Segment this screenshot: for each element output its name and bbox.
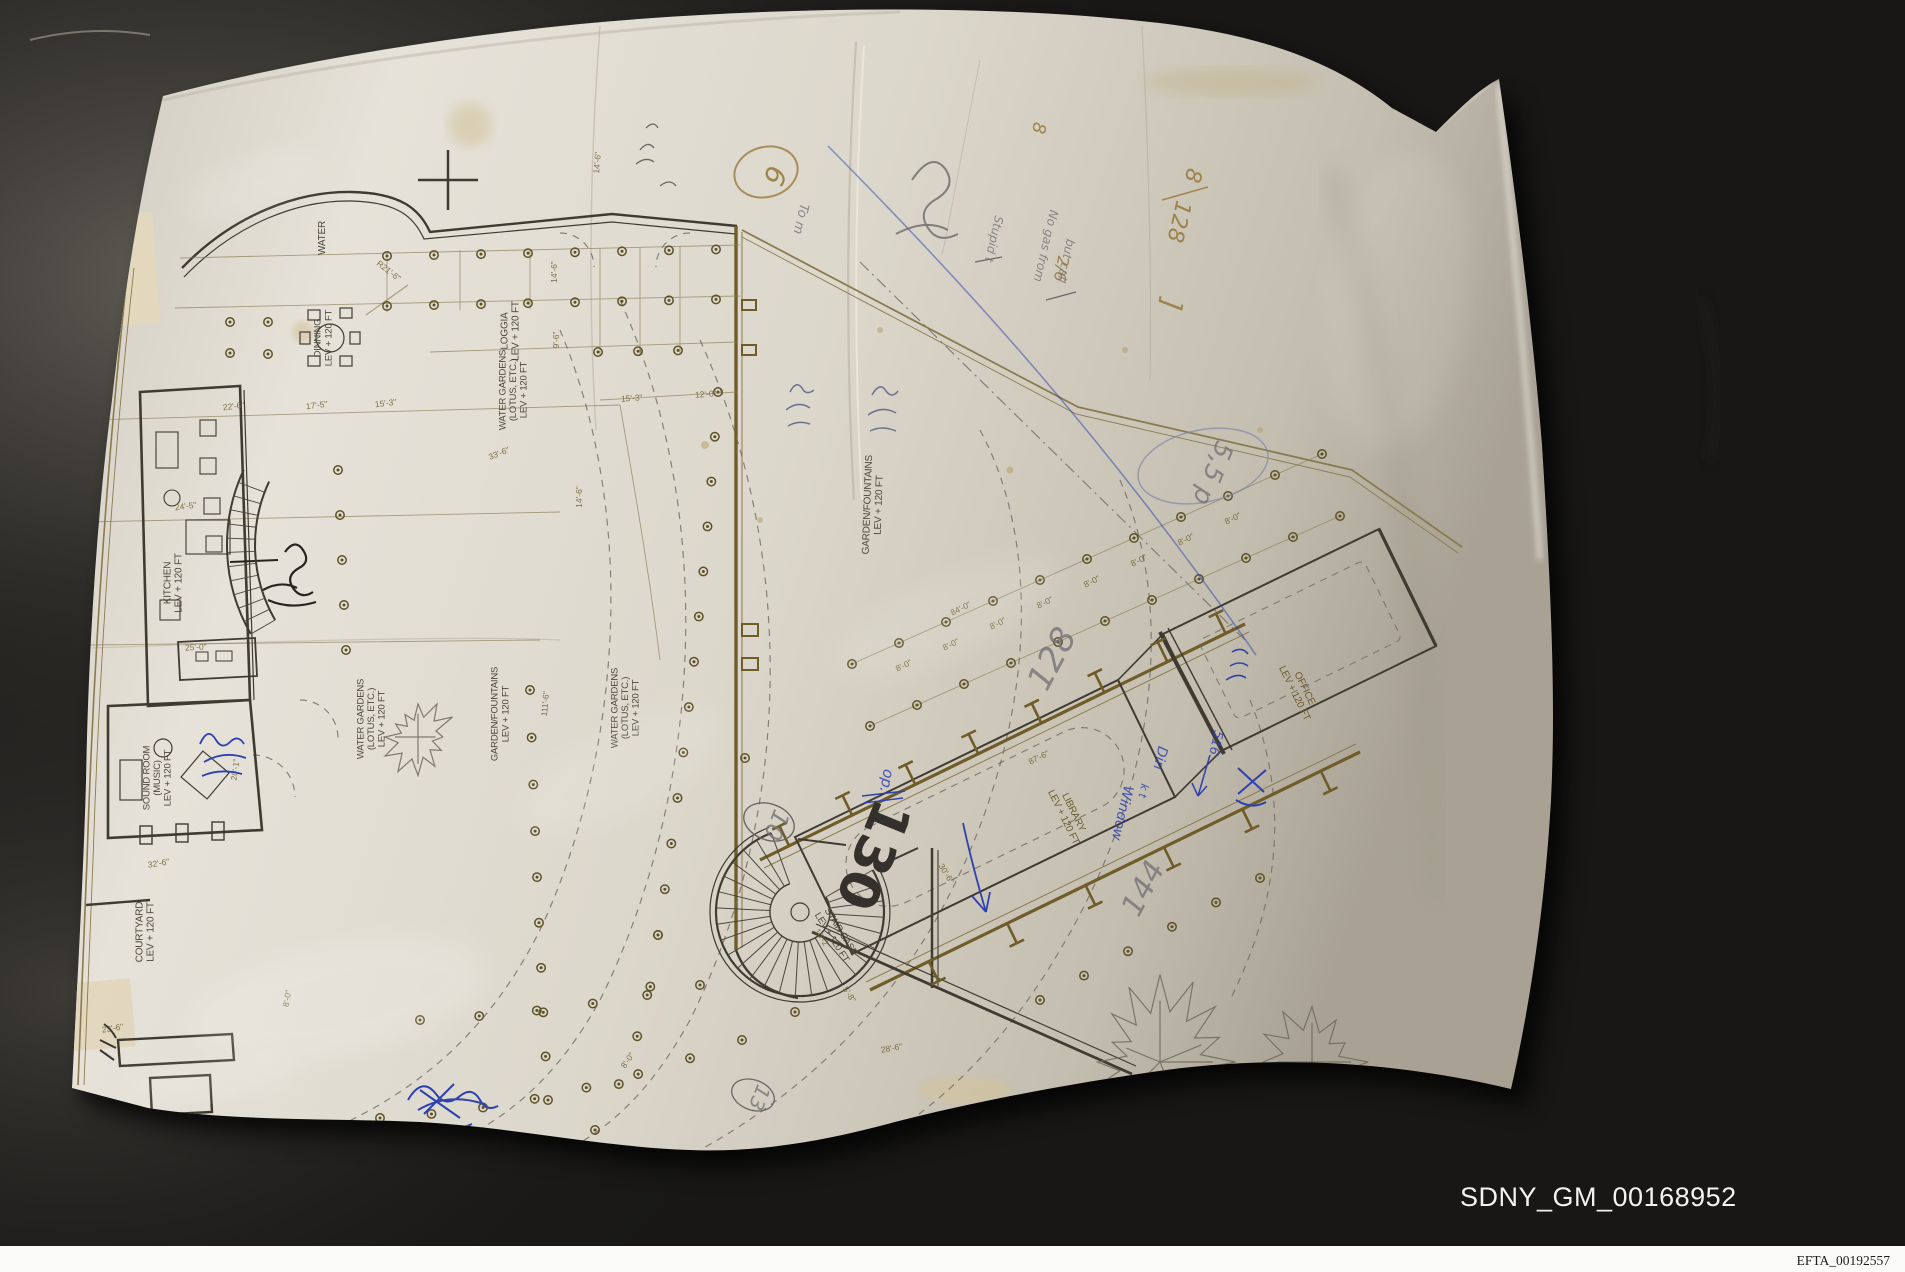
column-dot-center: [697, 615, 700, 618]
column-dot-center: [480, 253, 483, 256]
column-dot-center: [676, 796, 679, 799]
column-dot-center: [533, 1097, 536, 1100]
column-dot-center: [480, 303, 483, 306]
column-dot-center: [536, 876, 539, 879]
column-dot-center: [869, 725, 872, 728]
column-dot-center: [529, 689, 532, 692]
column-dot-center: [744, 757, 747, 760]
column-dot-center: [715, 298, 718, 301]
column-dot-center: [702, 570, 705, 573]
dimension-label: 12'-0": [695, 388, 717, 399]
dimension-label: 9'-6": [551, 332, 561, 349]
column-dot-center: [646, 994, 649, 997]
column-dot-center: [710, 480, 713, 483]
column-dot-center: [345, 649, 348, 652]
column-dot-center: [963, 683, 966, 686]
white-footer-strip: [0, 1246, 1905, 1272]
column-dot-center: [699, 984, 702, 987]
column-dot-center: [670, 842, 673, 845]
column-dot-center: [741, 1039, 744, 1042]
room-label: KITCHENLEV + 120 FT: [162, 553, 184, 613]
column-dot-center: [693, 660, 696, 663]
column-dot-center: [1321, 453, 1324, 456]
column-dot-center: [267, 321, 270, 324]
column-dot-center: [337, 469, 340, 472]
column-dot-center: [637, 350, 640, 353]
dimension-label: 15'-3": [621, 392, 643, 403]
footer-label: EFTA_00192557: [1797, 1253, 1891, 1268]
column-dot-center: [1010, 662, 1013, 665]
column-dot-center: [621, 300, 624, 303]
column-dot-center: [1104, 620, 1107, 623]
column-dot-center: [1127, 950, 1130, 953]
column-dot-center: [229, 352, 232, 355]
column-dot-center: [636, 1035, 639, 1038]
column-dot-center: [527, 252, 530, 255]
column-dot-center: [621, 250, 624, 253]
room-label: WATER: [317, 221, 328, 255]
column-dot-center: [535, 1009, 538, 1012]
column-dot-center: [637, 1073, 640, 1076]
column-dot-center: [689, 1057, 692, 1060]
dimension-label: 14'-6": [591, 152, 603, 174]
column-dot-center: [657, 934, 660, 937]
column-dot-center: [1133, 537, 1136, 540]
column-dot-center: [1292, 536, 1295, 539]
column-dot-center: [433, 254, 436, 257]
column-dot-center: [339, 514, 342, 517]
column-dot-center: [916, 704, 919, 707]
column-dot-center: [341, 559, 344, 562]
column-dot-center: [706, 525, 709, 528]
column-dot-center: [597, 351, 600, 354]
column-dot-center: [386, 255, 389, 258]
column-dot-center: [713, 435, 716, 438]
column-dot-center: [430, 1112, 433, 1115]
column-dot-center: [574, 301, 577, 304]
room-label: WATER GARDENS(LOTUS, ETC.)LEV + 120 FT: [355, 679, 387, 759]
column-dot-center: [663, 888, 666, 891]
column-dot-center: [527, 302, 530, 305]
column-dot-center: [530, 736, 533, 739]
column-dot-center: [540, 966, 543, 969]
column-dot-center: [1274, 474, 1277, 477]
column-dot-center: [379, 1117, 382, 1120]
column-dot-center: [1039, 999, 1042, 1002]
column-dot-center: [617, 1083, 620, 1086]
column-dot-center: [433, 304, 436, 307]
column-dot-center: [1180, 516, 1183, 519]
column-dot-center: [1083, 974, 1086, 977]
column-dot-center: [229, 321, 232, 324]
column-dot-center: [668, 249, 671, 252]
column-dot-center: [386, 305, 389, 308]
column-dot-center: [668, 299, 671, 302]
column-dot-center: [478, 1015, 481, 1018]
column-dot-center: [591, 1002, 594, 1005]
room-label: WATER GARDENS(LOTUS, ETC.)LEV + 120 FT: [497, 350, 529, 430]
column-dot-center: [547, 1099, 550, 1102]
column-dot-center: [267, 353, 270, 356]
column-dot-center: [542, 1011, 545, 1014]
column-dot-center: [1245, 557, 1248, 560]
bates-label: SDNY_GM_00168952: [1460, 1182, 1737, 1212]
column-dot-center: [1151, 599, 1154, 602]
column-dot-center: [538, 921, 541, 924]
column-dot-center: [544, 1055, 547, 1058]
photo-canvas: WATERDINNINGLEV + 120 FTLOGGIALEV + 120 …: [0, 0, 1905, 1272]
column-dot-center: [717, 391, 720, 394]
column-dot-center: [1086, 558, 1089, 561]
column-dot-center: [715, 248, 718, 251]
dimension-label: 14'-6": [574, 486, 584, 508]
dimension-label: 25'-0": [185, 641, 207, 652]
evidence-photo: WATERDINNINGLEV + 120 FTLOGGIALEV + 120 …: [0, 0, 1905, 1272]
column-dot-center: [1339, 515, 1342, 518]
column-dot-center: [677, 349, 680, 352]
column-dot-center: [1198, 578, 1201, 581]
room-label: COURTYARDLEV + 120 FT: [134, 902, 156, 963]
column-dot-center: [594, 1129, 597, 1132]
column-dot-center: [794, 1011, 797, 1014]
column-dot-center: [574, 251, 577, 254]
column-dot-center: [343, 604, 346, 607]
column-dot-center: [1259, 877, 1262, 880]
column-dot-center: [585, 1086, 588, 1089]
column-dot-center: [1215, 901, 1218, 904]
dimension-label: 14'-6": [549, 261, 559, 283]
column-dot-center: [1171, 925, 1174, 928]
column-dot-center: [649, 985, 652, 988]
